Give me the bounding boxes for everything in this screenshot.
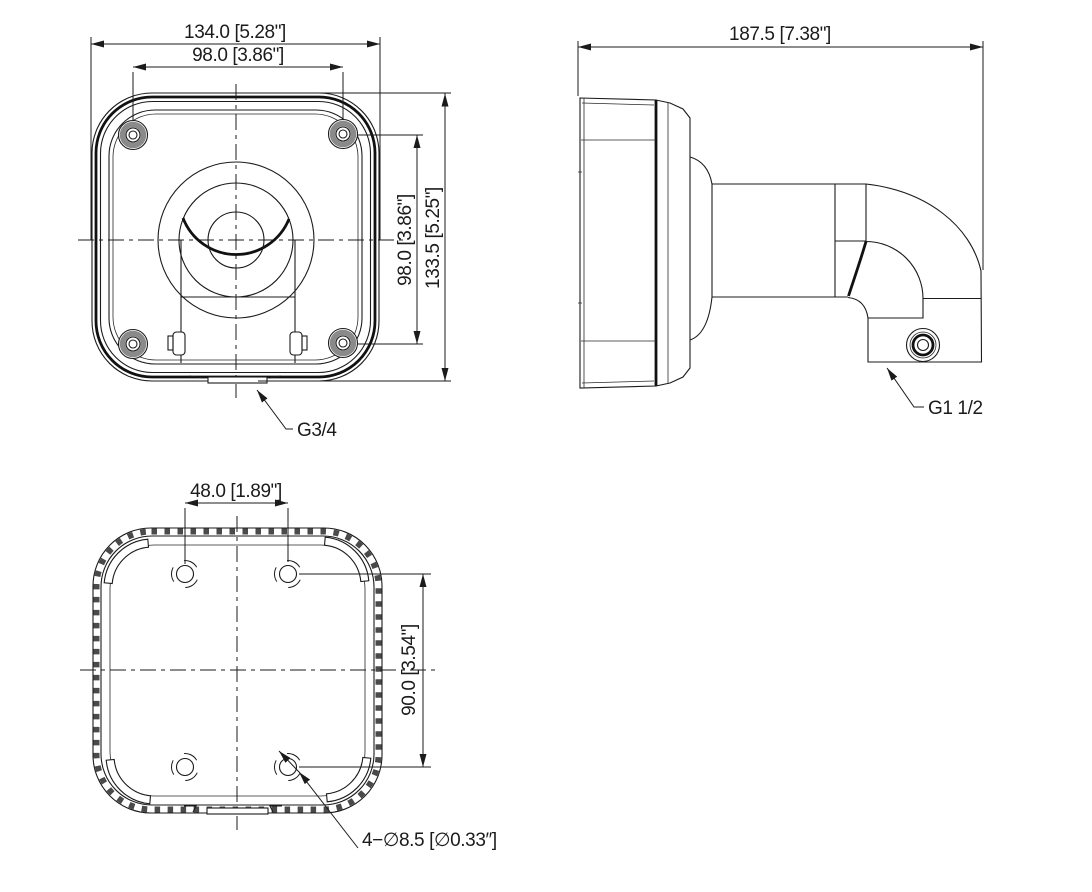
corner-screw <box>119 121 148 150</box>
hinge-ear <box>173 332 185 355</box>
side-view: 187.5 [7.38"] G1 1/2 <box>578 24 983 419</box>
dim-text-bottom-hole-spacing-h: 48.0 [1.89"] <box>190 481 282 502</box>
extension-lines <box>578 41 983 270</box>
dimension-side-overall-depth: 187.5 [7.38"] <box>578 24 983 270</box>
callout-hole-diameter: 4−∅8.5 [∅0.33″] <box>279 751 497 851</box>
dim-text-side-overall-depth: 187.5 [7.38"] <box>729 24 831 45</box>
leader-arrow <box>887 368 924 407</box>
thread-label-g34: G3/4 <box>297 420 337 441</box>
dim-text-front-hole-height: 98.0 [3.86"] <box>395 194 416 286</box>
side-arm-elbow <box>690 157 982 362</box>
thread-cap <box>907 329 940 362</box>
thread-label-g112: G1 1/2 <box>928 398 983 419</box>
mounting-hole <box>167 749 203 785</box>
corner-screw <box>329 329 358 358</box>
boss-body <box>181 240 295 363</box>
hole-diameter-label: 4−∅8.5 [∅0.33″] <box>362 830 497 851</box>
corner-slot <box>104 539 148 583</box>
corner-slot <box>106 760 150 804</box>
bottom-view: 48.0 [1.89"] 90.0 [3.54"] 4−∅8.5 [∅0.33″… <box>80 481 497 851</box>
corner-screw <box>329 120 358 149</box>
leader-arrow <box>257 390 293 429</box>
side-base-slab <box>578 98 690 388</box>
callout-thread-g112: G1 1/2 <box>887 368 983 419</box>
corner-screw <box>119 330 148 359</box>
hinge-ear-flange <box>302 336 307 350</box>
dim-text-front-hole-width: 98.0 [3.86"] <box>192 45 284 66</box>
hinge-ear <box>290 332 302 355</box>
dim-text-front-overall-height: 133.5 [5.25"] <box>423 187 444 289</box>
corner-screws <box>119 120 358 359</box>
front-view: 134.0 [5.28"] 98.0 [3.86"] 98.0 [3.86"] … <box>78 22 451 441</box>
callout-thread-g34: G3/4 <box>257 390 337 441</box>
dim-text-bottom-hole-spacing-v: 90.0 [3.54"] <box>399 624 420 716</box>
dimension-drawing-page: 134.0 [5.28"] 98.0 [3.86"] 98.0 [3.86"] … <box>0 0 1092 892</box>
hinge-ear-flange <box>168 336 173 350</box>
drawing-canvas: 134.0 [5.28"] 98.0 [3.86"] 98.0 [3.86"] … <box>0 0 1092 892</box>
hinge-ears <box>168 332 307 355</box>
dim-text-front-overall-width: 134.0 [5.28"] <box>184 22 286 43</box>
